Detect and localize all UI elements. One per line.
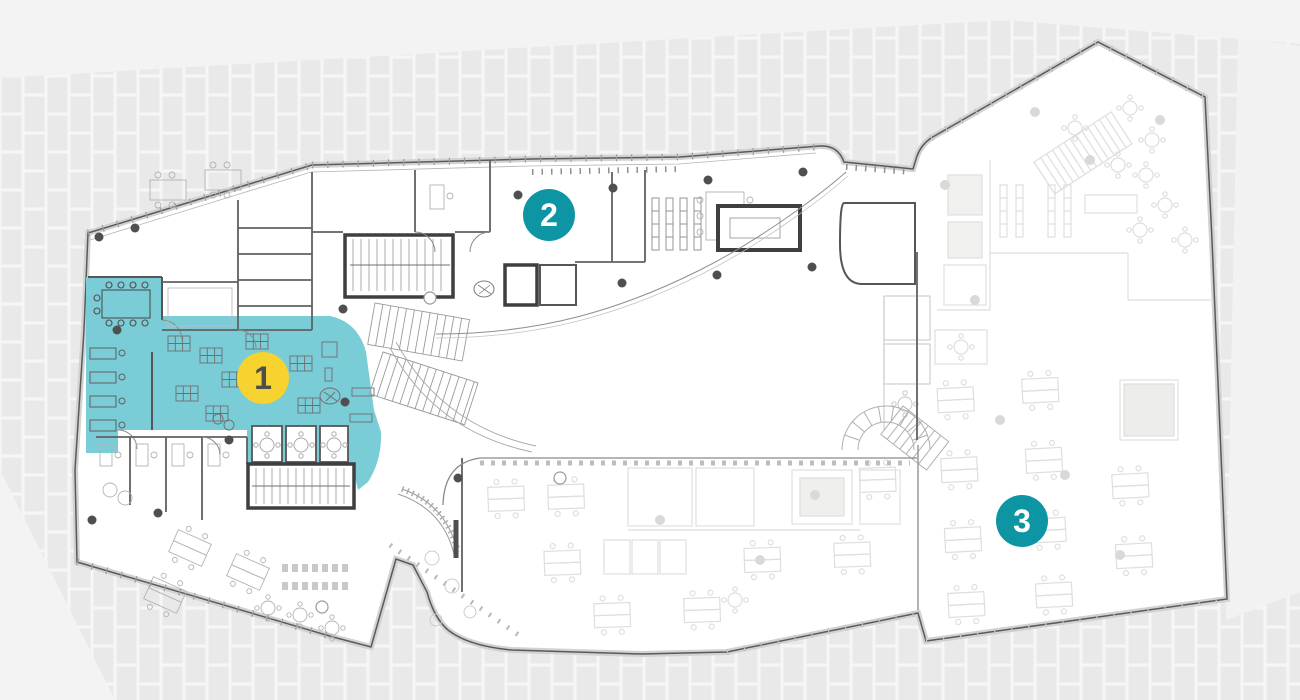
phone-rooms [252,426,348,462]
core-small-a [505,265,537,305]
stair-core-lower [248,464,354,508]
marker-2[interactable]: 2 [523,189,575,241]
marker-2-label: 2 [540,199,558,231]
floor-plan-canvas: 1 2 3 [0,0,1300,700]
core-small-b [540,265,576,305]
rounded-room [840,203,915,284]
floor-plan-svg [0,0,1300,700]
marker-1[interactable]: 1 [237,352,289,404]
stair-core-upper [345,235,453,297]
marker-3-label: 3 [1013,505,1031,537]
marker-1-label: 1 [254,362,272,394]
marker-3[interactable]: 3 [996,495,1048,547]
